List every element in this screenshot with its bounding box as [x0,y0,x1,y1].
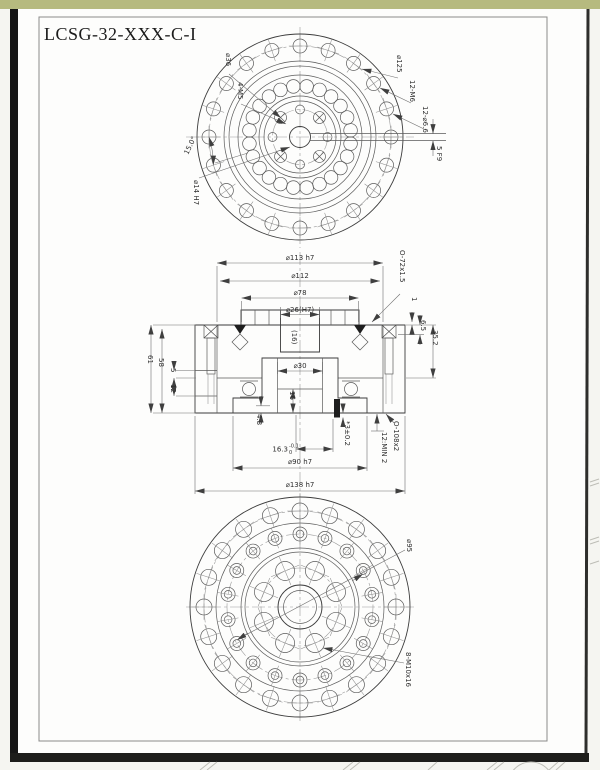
dim-label-d112: ⌀112 [291,272,309,280]
dim-label-bore16: 16 [288,391,296,400]
dim-label-12d66: 12-⌀6.6 [421,106,429,133]
dim-label-depth16: (16) [290,330,298,345]
dim-label-oring-top: O-72x1.5 [398,250,406,282]
dim-label-h58: 58 [157,358,165,367]
dim-label-w163-sup: -0.1 [289,444,299,450]
top-green-strip [0,0,600,9]
dim-label-d36: ⌀36 [224,53,232,67]
dim-label-h1: 1 [410,297,418,301]
dim-label-min2: 12:MIN 2 [380,432,388,463]
right-dark-edge [586,9,588,753]
dim-label-h5: 5 [169,368,177,372]
dim-label-h352: 35.2 [431,330,439,346]
dim-label-4m5: 4-M5 [236,82,244,99]
bottom-dark-bar [10,753,589,762]
section-pin [334,399,340,418]
drawing-page: LCSG-32-XXX-C-I [0,0,600,770]
dim-label-d14: ⌀14 H7 [192,180,200,205]
dim-label-w163-sub: 0 [289,450,292,456]
engineering-drawing: LCSG-32-XXX-C-I [0,0,600,770]
dim-label-d78: ⌀78 [293,289,306,297]
dim-label-8m10: 8-M10x16 [404,652,412,688]
dim-label-d138: ⌀138 h7 [286,481,315,489]
dim-label-h65: 6.5 [419,320,427,331]
left-dark-bar [10,9,18,757]
dim-label-d125: ⌀125 [395,55,403,73]
dim-label-w163: 16.3 [272,446,288,454]
sheet [17,9,588,757]
dim-label-d90: ⌀90 h7 [288,458,312,466]
dim-label-h61: 61 [146,355,154,364]
dim-label-d95: ⌀95 [405,539,413,552]
drawing-title: LCSG-32-XXX-C-I [44,24,196,44]
dim-label-12m6: 12-M6 [408,80,416,102]
dim-label-h48: 4.8 [255,414,263,425]
dim-label-pin: *3±0.2 [343,421,351,446]
dim-label-oring-bot: O-108x2 [392,421,400,451]
dim-label-h12: 12 [169,384,177,393]
dim-label-d26: ⌀26(H7) [286,306,315,314]
dim-label-d30: ⌀30 [293,362,306,370]
dim-label-d113: ⌀113 h7 [286,254,315,262]
dim-label-key5f9: 5 F9 [435,146,443,161]
